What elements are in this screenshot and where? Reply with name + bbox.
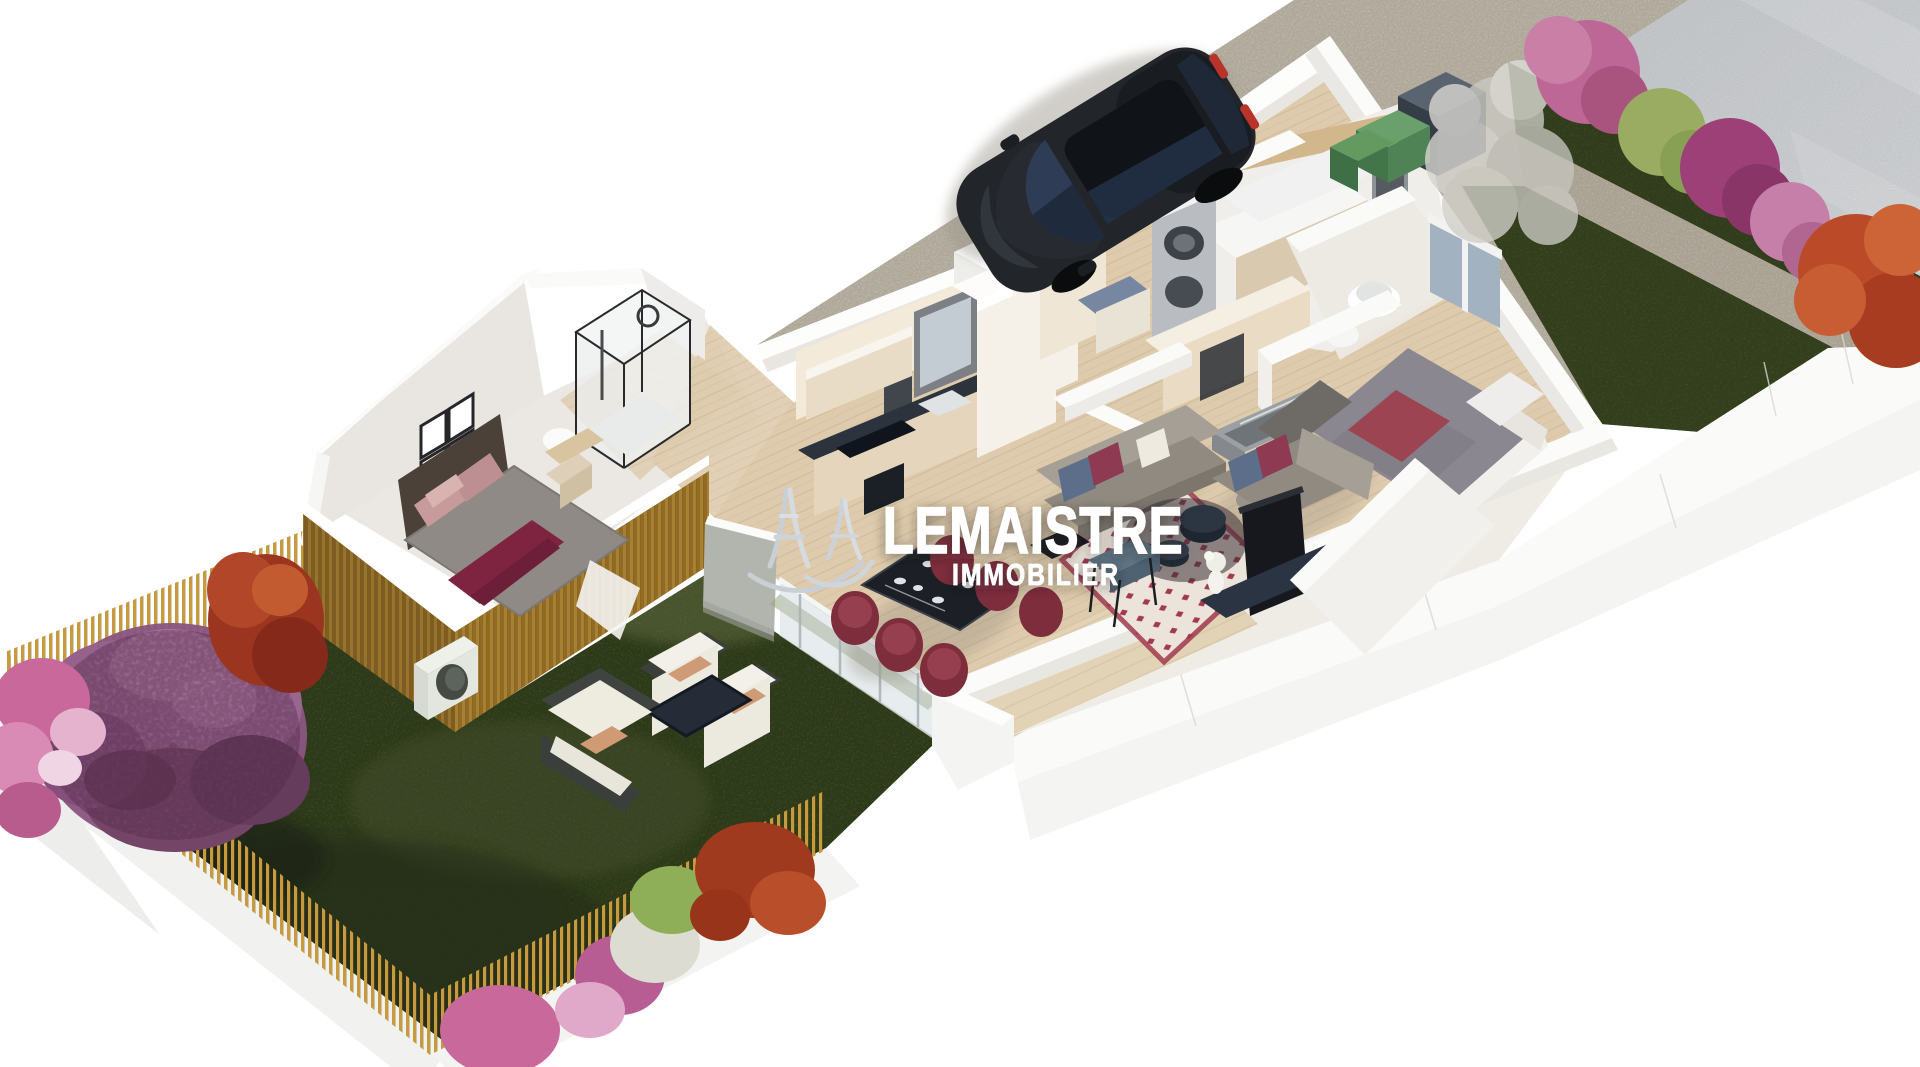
svg-text:IMMOBILIER: IMMOBILIER xyxy=(952,557,1120,591)
